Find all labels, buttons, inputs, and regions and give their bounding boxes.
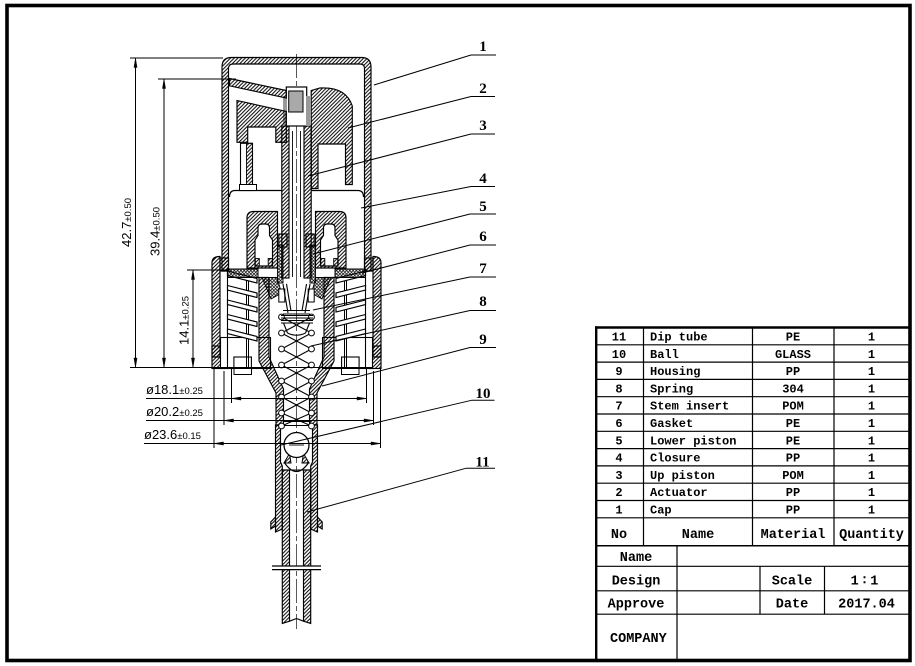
svg-text:POM: POM [782, 400, 804, 414]
svg-text:1: 1 [479, 39, 487, 55]
svg-text:Housing: Housing [650, 365, 700, 379]
svg-text:PE: PE [786, 331, 800, 345]
svg-text:1: 1 [868, 382, 875, 396]
svg-text:Stem insert: Stem insert [650, 400, 729, 414]
svg-text:1: 1 [868, 504, 875, 518]
svg-text:11: 11 [612, 331, 626, 345]
svg-text:4: 4 [479, 171, 487, 187]
svg-text:1: 1 [868, 365, 875, 379]
svg-text:PE: PE [786, 434, 800, 448]
svg-text:Approve: Approve [608, 598, 665, 613]
svg-text:Quantity: Quantity [839, 528, 904, 543]
svg-text:7: 7 [615, 400, 622, 414]
svg-text:1∶1: 1∶1 [851, 575, 883, 590]
svg-text:Material: Material [761, 528, 826, 543]
svg-text:11: 11 [475, 455, 489, 471]
svg-text:2: 2 [479, 81, 487, 97]
svg-text:PP: PP [786, 486, 800, 500]
svg-text:3: 3 [479, 118, 487, 134]
svg-text:7: 7 [479, 261, 487, 277]
svg-text:1: 1 [868, 486, 875, 500]
svg-text:1: 1 [868, 348, 875, 362]
svg-text:1: 1 [868, 417, 875, 431]
svg-text:304: 304 [782, 382, 804, 396]
svg-text:10: 10 [612, 348, 626, 362]
svg-text:Scale: Scale [772, 575, 813, 590]
svg-text:PP: PP [786, 504, 800, 518]
svg-text:Date: Date [776, 598, 808, 613]
svg-text:Up piston: Up piston [650, 469, 715, 483]
svg-text:Cap: Cap [650, 504, 672, 518]
svg-text:Closure: Closure [650, 452, 700, 466]
svg-text:6: 6 [479, 229, 487, 245]
svg-text:Design: Design [612, 575, 661, 590]
svg-text:1: 1 [868, 469, 875, 483]
svg-text:Lower piston: Lower piston [650, 434, 736, 448]
svg-text:10: 10 [476, 386, 491, 402]
svg-text:6: 6 [615, 417, 622, 431]
svg-text:1: 1 [868, 331, 875, 345]
svg-text:9: 9 [615, 365, 622, 379]
svg-text:4: 4 [615, 452, 622, 466]
svg-text:PP: PP [786, 365, 800, 379]
svg-text:2017.04: 2017.04 [838, 598, 895, 613]
svg-text:1: 1 [868, 452, 875, 466]
svg-text:PP: PP [786, 452, 800, 466]
svg-text:Dip tube: Dip tube [650, 331, 708, 345]
svg-text:5: 5 [615, 434, 622, 448]
svg-text:COMPANY: COMPANY [610, 632, 668, 647]
svg-text:3: 3 [615, 469, 622, 483]
svg-text:No: No [611, 528, 627, 543]
svg-text:Spring: Spring [650, 382, 693, 396]
svg-text:8: 8 [615, 382, 622, 396]
svg-text:9: 9 [479, 332, 487, 348]
svg-text:Name: Name [682, 528, 714, 543]
svg-text:1: 1 [868, 400, 875, 414]
svg-text:Name: Name [620, 551, 652, 566]
svg-text:Ball: Ball [650, 348, 679, 362]
svg-text:GLASS: GLASS [775, 348, 811, 362]
svg-text:2: 2 [615, 486, 622, 500]
svg-text:Actuator: Actuator [650, 486, 708, 500]
svg-text:POM: POM [782, 469, 804, 483]
svg-text:8: 8 [479, 294, 487, 310]
svg-text:PE: PE [786, 417, 800, 431]
svg-text:1: 1 [868, 434, 875, 448]
svg-text:5: 5 [479, 199, 487, 215]
svg-text:1: 1 [615, 504, 622, 518]
svg-text:Gasket: Gasket [650, 417, 693, 431]
